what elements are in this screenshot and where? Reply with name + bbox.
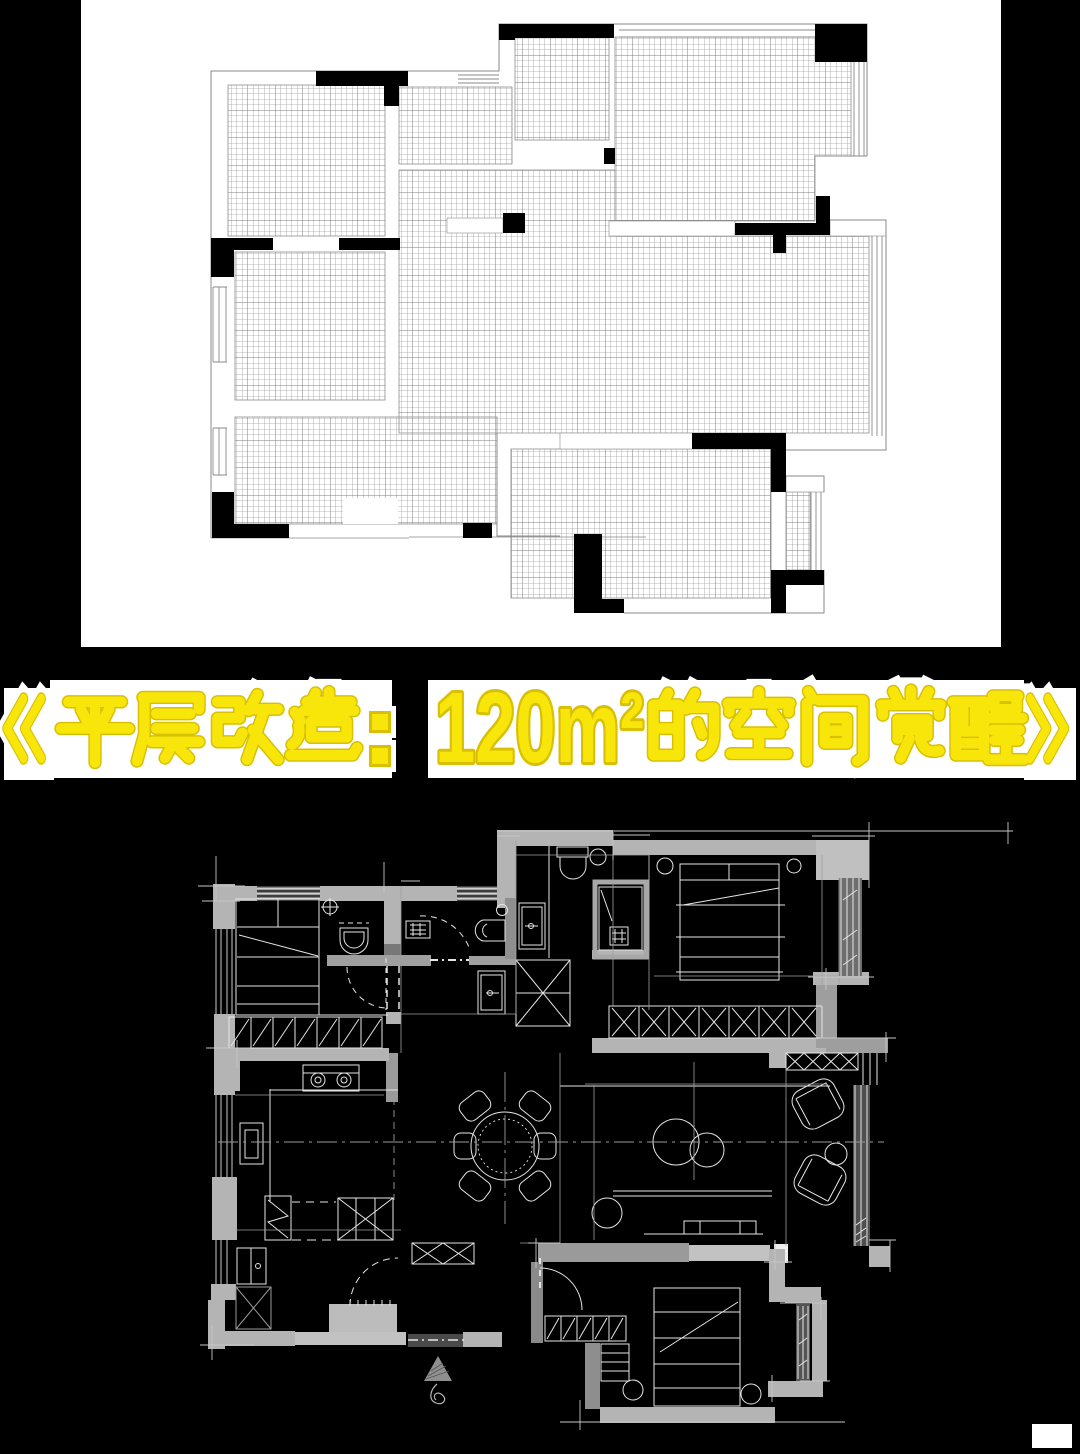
svg-text:120m²: 120m² [435,672,644,784]
